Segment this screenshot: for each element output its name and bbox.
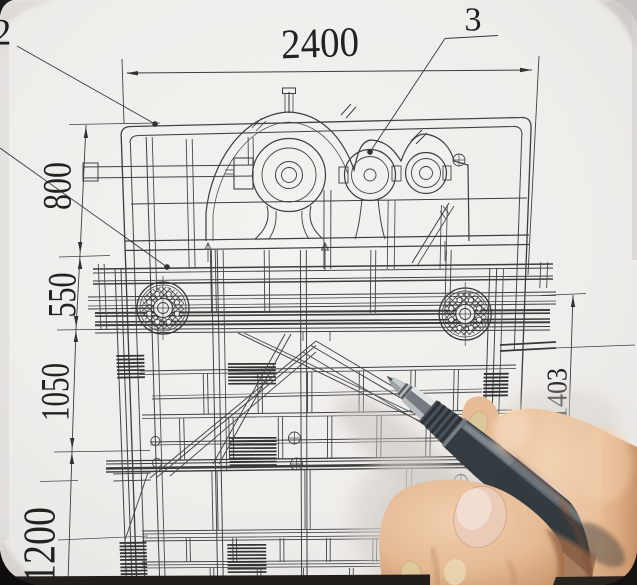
svg-text:2: 2 — [0, 13, 11, 54]
svg-text:800: 800 — [35, 162, 80, 210]
svg-text:3: 3 — [465, 2, 482, 39]
svg-text:1050: 1050 — [33, 363, 78, 421]
svg-text:2400: 2400 — [280, 20, 360, 69]
svg-text:550: 550 — [40, 273, 85, 318]
svg-text:1200: 1200 — [14, 507, 65, 583]
